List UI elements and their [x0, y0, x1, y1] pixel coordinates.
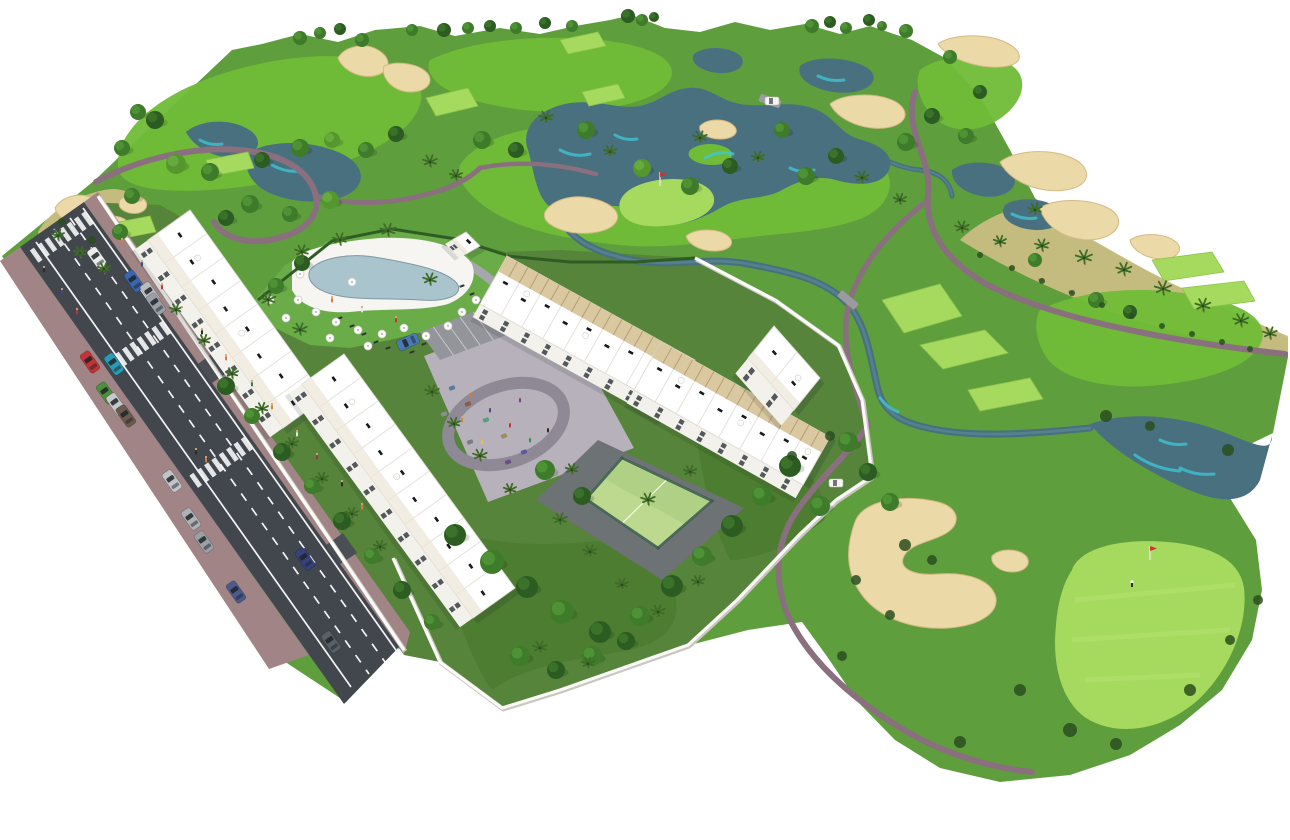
parasol-pole: [335, 321, 337, 323]
bush: [885, 610, 895, 620]
roof-parasol: [349, 399, 355, 405]
tree-highlight: [841, 23, 848, 30]
person-head: [361, 306, 363, 308]
person: [519, 398, 521, 403]
tree-highlight: [584, 648, 595, 659]
bush: [1009, 265, 1015, 271]
tree-highlight: [255, 153, 264, 162]
palm-crown: [301, 251, 303, 253]
palm-crown: [1162, 288, 1164, 290]
tree-highlight: [798, 168, 808, 178]
tree-highlight: [663, 577, 675, 589]
person-head: [205, 456, 207, 458]
tree-highlight: [1089, 293, 1098, 302]
palm-crown: [57, 235, 59, 237]
person-head: [225, 354, 227, 356]
bush: [1014, 684, 1026, 696]
tree-highlight: [131, 105, 140, 114]
parasol-pole: [329, 337, 331, 339]
tree-highlight: [394, 582, 404, 592]
tree-highlight: [356, 34, 364, 42]
palm-crown: [697, 581, 699, 583]
palm-crown: [429, 161, 431, 163]
parasol-pole: [381, 333, 383, 335]
parasol-pole: [357, 329, 359, 331]
parasol-pole: [447, 325, 449, 327]
tree-highlight: [512, 648, 523, 659]
tree-highlight: [540, 18, 547, 25]
tree-highlight: [775, 123, 784, 132]
palm-crown: [899, 199, 901, 201]
person: [361, 308, 363, 313]
bush: [1129, 313, 1135, 319]
person: [201, 330, 203, 335]
roof-parasol: [678, 377, 684, 383]
person: [395, 318, 397, 323]
palm-crown: [621, 584, 623, 586]
person-head: [331, 296, 333, 298]
parasol-pole: [403, 327, 405, 329]
person-head: [481, 438, 483, 440]
palm-crown: [699, 137, 701, 139]
tree-highlight: [754, 488, 765, 499]
person-head: [547, 426, 549, 428]
tree-highlight: [202, 164, 212, 174]
person-head: [76, 308, 78, 310]
person: [529, 438, 531, 443]
tree-highlight: [269, 279, 278, 288]
palm-crown: [1083, 257, 1085, 259]
palm-crown: [545, 117, 547, 119]
person: [361, 505, 363, 510]
person: [461, 418, 463, 423]
person: [296, 432, 298, 437]
tree-highlight: [274, 444, 284, 454]
palm-crown: [431, 391, 433, 393]
bush: [1247, 346, 1253, 352]
person-head: [529, 436, 531, 438]
tree-highlight: [622, 10, 630, 18]
tree-highlight: [548, 662, 558, 672]
person: [469, 393, 471, 398]
tree-highlight: [335, 24, 342, 31]
bush: [88, 236, 96, 244]
tree-highlight: [618, 633, 628, 643]
tree-highlight: [694, 548, 705, 559]
palm-crown: [1034, 209, 1036, 211]
tree-highlight: [168, 156, 179, 167]
palm-crown: [1202, 305, 1204, 307]
person: [331, 298, 333, 303]
tree-highlight: [840, 434, 851, 445]
tree-highlight: [806, 20, 814, 28]
person-head: [251, 380, 253, 382]
padel-fence-post: [656, 546, 659, 549]
person: [251, 382, 253, 387]
tree-highlight: [115, 141, 124, 150]
bush: [1189, 331, 1195, 337]
person-head: [341, 480, 343, 482]
tree-highlight: [882, 494, 892, 504]
palm-crown: [861, 177, 863, 179]
tree-highlight: [637, 15, 644, 22]
bush: [899, 539, 911, 551]
bush: [1219, 339, 1225, 345]
person-head: [201, 328, 203, 330]
tree-highlight: [322, 192, 332, 202]
palm-crown: [267, 299, 269, 301]
palm-crown: [321, 478, 323, 480]
palm-crown: [429, 279, 431, 281]
tree-highlight: [537, 462, 548, 473]
tree-highlight: [147, 112, 157, 122]
tree-highlight: [218, 378, 228, 388]
tree-highlight: [959, 129, 968, 138]
tree-highlight: [463, 23, 470, 30]
person: [76, 310, 78, 315]
bush: [977, 252, 983, 258]
tree-highlight: [407, 25, 414, 32]
bush: [1145, 421, 1155, 431]
person: [141, 262, 143, 267]
palm-crown: [757, 157, 759, 159]
person-head: [61, 288, 63, 290]
person: [225, 356, 227, 361]
palm-crown: [1240, 320, 1242, 322]
palm-crown: [231, 373, 233, 375]
palm-crown: [453, 423, 455, 425]
bush: [1063, 723, 1077, 737]
palm-crown: [175, 309, 177, 311]
aerial-render: Aerial render: golf resort residential d…: [0, 0, 1290, 840]
padel-fence-post: [620, 456, 623, 459]
tree-highlight: [825, 17, 832, 24]
palm-crown: [387, 230, 389, 232]
person: [489, 408, 491, 413]
bush: [851, 575, 861, 585]
tree-highlight: [898, 134, 908, 144]
bush: [1253, 595, 1263, 605]
roof-parasol: [583, 332, 589, 338]
tree-highlight: [812, 498, 823, 509]
golfer-figure: [1131, 583, 1133, 587]
palm-crown: [1123, 269, 1125, 271]
tree-highlight: [113, 225, 122, 234]
parasol-pole: [297, 299, 299, 301]
scene-svg: Aerial render: golf resort residential d…: [0, 0, 1290, 840]
palm-crown: [509, 489, 511, 491]
person-head: [316, 453, 318, 455]
person: [547, 428, 549, 433]
person-head: [141, 260, 143, 262]
palm-crown: [539, 647, 541, 649]
bush: [1184, 684, 1196, 696]
tree-highlight: [511, 23, 518, 30]
tree-highlight: [359, 143, 368, 152]
parasol-pole: [461, 311, 463, 313]
palm-crown: [961, 227, 963, 229]
tree-highlight: [245, 409, 254, 418]
tree-highlight: [294, 32, 302, 40]
person-head: [461, 416, 463, 418]
tree-highlight: [634, 160, 644, 170]
palm-crown: [1269, 333, 1271, 335]
tree-highlight: [474, 132, 484, 142]
palm-crown: [589, 551, 591, 553]
bush: [1159, 323, 1165, 329]
person: [121, 240, 123, 245]
person: [341, 482, 343, 487]
tree-highlight: [482, 552, 495, 565]
bush: [1099, 302, 1105, 308]
palm-crown: [1041, 245, 1043, 247]
tree-highlight: [860, 464, 870, 474]
tree-highlight: [365, 549, 374, 558]
parasol-pole: [299, 273, 301, 275]
person: [195, 450, 197, 455]
tree-highlight: [325, 133, 334, 142]
roof-parasol: [805, 449, 811, 455]
person: [181, 308, 183, 313]
tree-highlight: [518, 578, 530, 590]
bush: [58, 218, 66, 226]
sand-bunker: [1130, 235, 1180, 259]
tree-highlight: [283, 207, 292, 216]
parasol-pole: [315, 311, 317, 313]
parasol-pole: [367, 345, 369, 347]
person: [61, 290, 63, 295]
bush: [787, 451, 797, 461]
tree-highlight: [315, 28, 322, 35]
palm-crown: [351, 513, 353, 515]
tree-highlight: [632, 608, 643, 619]
palm-crown: [299, 329, 301, 331]
bush: [825, 431, 835, 441]
tree-highlight: [591, 623, 603, 635]
tree-highlight: [925, 109, 934, 118]
tree-highlight: [305, 479, 314, 488]
golf-cart-canopy: [769, 98, 773, 104]
palm-crown: [479, 455, 481, 457]
bush: [1225, 635, 1235, 645]
palm-crown: [339, 239, 341, 241]
roof-parasol: [239, 330, 245, 336]
palm-crown: [999, 241, 1001, 243]
person: [481, 440, 483, 445]
parasol-pole: [285, 317, 287, 319]
person-head: [195, 448, 197, 450]
palm-crown: [379, 546, 381, 548]
palm-crown: [455, 175, 457, 177]
palm-crown: [291, 443, 293, 445]
tee-box: [1182, 281, 1255, 309]
parasol-pole: [425, 335, 427, 337]
tree-highlight: [567, 21, 574, 28]
person: [161, 285, 163, 290]
person-head: [161, 283, 163, 285]
person-head: [121, 238, 123, 240]
tree-highlight: [509, 143, 518, 152]
tree-highlight: [292, 140, 302, 150]
tree-highlight: [900, 25, 908, 33]
parasol-pole: [351, 281, 353, 283]
person-head: [489, 406, 491, 408]
tree-highlight: [1124, 306, 1132, 314]
tree-highlight: [438, 24, 446, 32]
person-head: [181, 306, 183, 308]
tree-highlight: [552, 602, 565, 615]
tree-highlight: [125, 189, 134, 198]
person-head: [519, 396, 521, 398]
tree-highlight: [334, 513, 344, 523]
bush: [1069, 290, 1075, 296]
tree-highlight: [425, 615, 434, 624]
tree-highlight: [446, 526, 458, 538]
person-head: [361, 503, 363, 505]
person-head: [469, 391, 471, 393]
tree-highlight: [682, 178, 692, 188]
bush: [954, 736, 966, 748]
palm-crown: [261, 408, 263, 410]
tree-highlight: [485, 21, 492, 28]
person-head: [395, 316, 397, 318]
tree-highlight: [578, 122, 588, 132]
bush: [837, 651, 847, 661]
golf-cart-canopy: [833, 480, 837, 486]
palm-crown: [103, 268, 105, 270]
bush: [1222, 444, 1234, 456]
person: [43, 268, 45, 273]
person: [271, 405, 273, 410]
bush: [1100, 410, 1112, 422]
tree-highlight: [574, 488, 584, 498]
person-head: [43, 266, 45, 268]
palm-crown: [689, 471, 691, 473]
roof-parasol: [795, 375, 801, 381]
parasol-pole: [475, 299, 477, 301]
tree-highlight: [864, 15, 871, 22]
person: [205, 458, 207, 463]
roof-parasol: [195, 255, 201, 261]
palm-crown: [647, 499, 649, 501]
roof-parasol: [394, 474, 400, 480]
tree-highlight: [1029, 254, 1037, 262]
palm-crown: [559, 519, 561, 521]
tree-highlight: [723, 159, 732, 168]
tree-highlight: [219, 211, 228, 220]
palm-crown: [203, 340, 205, 342]
tree-highlight: [723, 517, 735, 529]
roof-parasol: [524, 291, 530, 297]
person-head: [509, 421, 511, 423]
tree-highlight: [650, 13, 656, 19]
tree-highlight: [878, 22, 884, 28]
bush: [927, 555, 937, 565]
person-head: [271, 403, 273, 405]
palm-crown: [587, 663, 589, 665]
tree-highlight: [389, 127, 398, 136]
tree-highlight: [829, 149, 838, 158]
tree-highlight: [242, 196, 252, 206]
bush: [1110, 738, 1122, 750]
palm-crown: [79, 252, 81, 254]
tree-highlight: [974, 86, 982, 94]
palm-crown: [571, 469, 573, 471]
palm-crown: [609, 151, 611, 153]
palm-crown: [657, 611, 659, 613]
roof-parasol: [738, 420, 744, 426]
person: [316, 455, 318, 460]
person-head: [296, 430, 298, 432]
person: [509, 423, 511, 428]
bush: [1039, 278, 1045, 284]
padel-fence-post: [710, 499, 713, 502]
tree-highlight: [944, 51, 952, 59]
